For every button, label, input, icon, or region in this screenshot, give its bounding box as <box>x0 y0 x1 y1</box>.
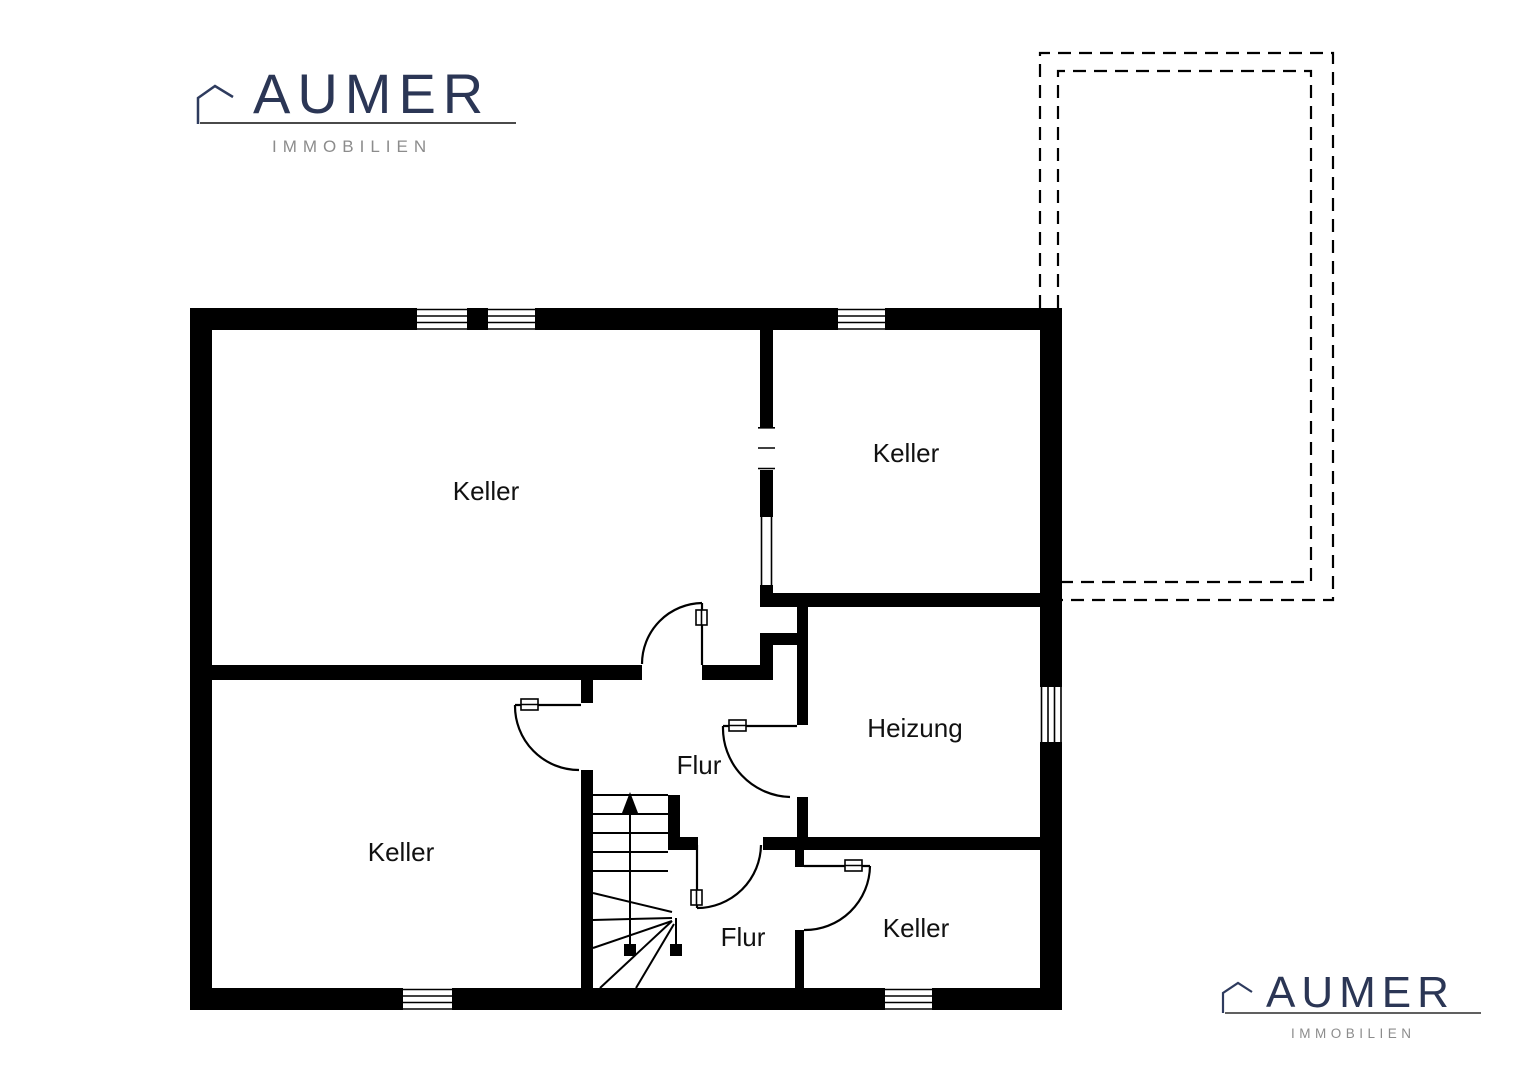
terrace-outer-outline <box>1040 53 1333 600</box>
wall-flur-lower-top-seg2 <box>763 837 1040 850</box>
window-glass <box>417 308 467 330</box>
wall-top-kellers-seg1 <box>760 330 773 427</box>
room-labels: Keller Keller Heizung Flur Keller Flur K… <box>368 438 963 952</box>
aumer-logo-top: AUMER IMMOBILIEN <box>198 62 516 156</box>
stair-winder <box>593 893 672 912</box>
logo-subtitle: IMMOBILIEN <box>272 137 432 156</box>
door-swing-symbol <box>697 845 761 908</box>
wall-heizung-top <box>772 593 1040 607</box>
wall-flur-lower-top-seg1 <box>680 837 698 850</box>
floorplan-page: AUMER IMMOBILIEN <box>0 0 1528 1080</box>
room-label-heizung: Heizung <box>867 713 962 743</box>
terrace-dashed-outline <box>1040 53 1333 600</box>
floorplan-canvas: AUMER IMMOBILIEN <box>0 0 1528 1080</box>
wall-stair-left-seg2 <box>581 770 593 988</box>
logo-subtitle: IMMOBILIEN <box>1291 1026 1416 1041</box>
chimney-bottom-bar <box>760 633 797 645</box>
wall-keller-br-left-seg2 <box>795 930 804 988</box>
outer-wall-left <box>190 308 212 1010</box>
outer-walls <box>190 308 1062 1010</box>
door-flur-lower <box>691 845 761 908</box>
door-swing-symbol <box>515 705 579 770</box>
door-swing-symbol <box>642 603 702 664</box>
door-keller-bottom-right <box>804 860 870 930</box>
house-icon <box>1223 983 1252 1013</box>
window-symbol-top-1 <box>417 308 467 330</box>
stair-winder <box>593 921 672 948</box>
aumer-logo-bottom: AUMER IMMOBILIEN <box>1223 968 1481 1041</box>
window-glass <box>488 308 535 330</box>
house-icon <box>198 86 233 124</box>
window-symbol-bottom-1 <box>403 988 452 1010</box>
stair-winder <box>593 918 672 920</box>
door-keller-top-left <box>642 603 707 665</box>
wall-stair-left-seg1 <box>581 680 593 703</box>
room-label-keller-bottom-left: Keller <box>368 837 435 867</box>
window-symbol-right <box>1040 687 1062 742</box>
window-symbol-top-2 <box>488 308 535 330</box>
door-keller-bottom-left <box>515 699 581 770</box>
wall-top-kellers-seg2 <box>760 470 773 517</box>
door-heizung <box>723 720 797 797</box>
room-label-flur-upper: Flur <box>677 750 722 780</box>
stair-winder <box>636 924 674 988</box>
outer-wall-right <box>1040 308 1062 1010</box>
wall-top-kellers-seg3 <box>760 585 773 607</box>
wall-keller-br-left-seg1 <box>795 850 804 867</box>
room-label-keller-bottom-right: Keller <box>883 913 950 943</box>
door-swing-symbol <box>804 866 870 930</box>
room-label-flur-lower: Flur <box>721 922 766 952</box>
window-glass <box>885 988 932 1010</box>
stair-post <box>670 944 682 956</box>
wall-keller-tl-bottom-seg1 <box>212 665 642 680</box>
door-swing-symbol <box>723 726 790 797</box>
window-glass <box>403 988 452 1010</box>
window-glass <box>838 308 885 330</box>
terrace-inner-outline <box>1058 71 1311 582</box>
wall-stair-right <box>668 795 680 850</box>
logo-title: AUMER <box>1266 968 1455 1017</box>
windows <box>403 308 1062 1010</box>
window-symbol-top-3 <box>838 308 885 330</box>
window-glass <box>1040 687 1062 742</box>
wall-keller-tl-bottom-seg2 <box>702 665 772 680</box>
logo-title: AUMER <box>253 62 490 125</box>
room-label-keller-top-right: Keller <box>873 438 940 468</box>
room-label-keller-top-left: Keller <box>453 476 520 506</box>
interior-walls <box>212 330 1040 988</box>
outer-wall-top <box>190 308 1062 330</box>
wall-heizung-left-seg1 <box>797 593 808 725</box>
window-symbol-bottom-2 <box>885 988 932 1010</box>
